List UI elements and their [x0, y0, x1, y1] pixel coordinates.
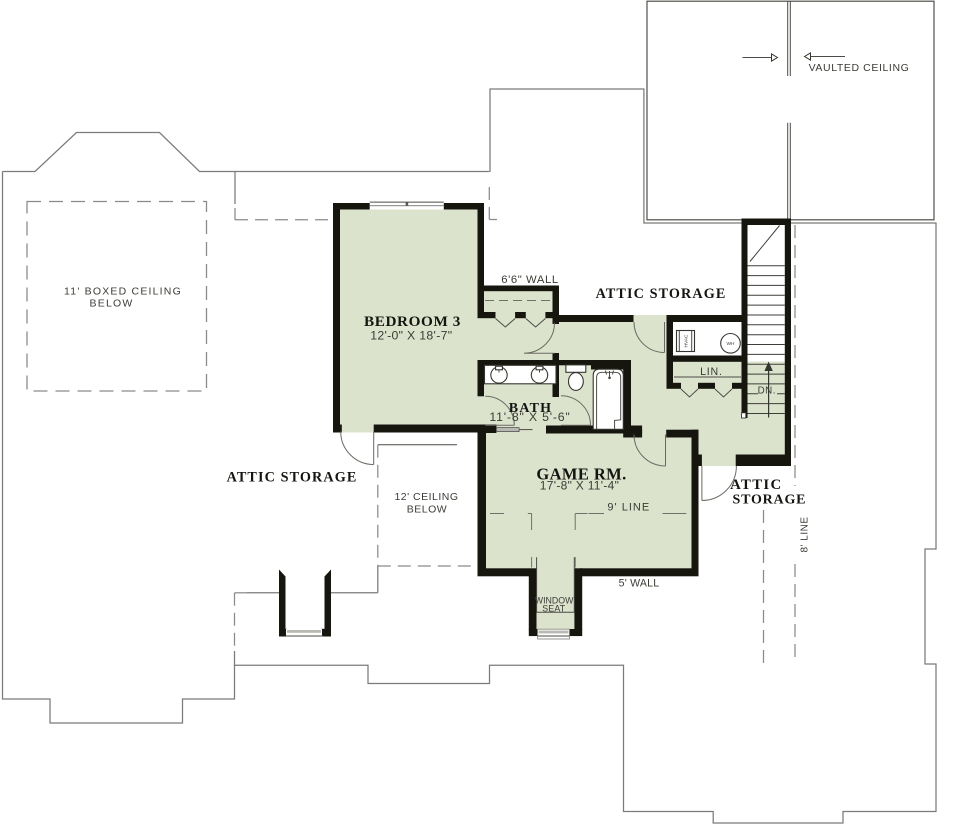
svg-text:11'-8" X 5'-6": 11'-8" X 5'-6" [489, 410, 570, 424]
svg-text:SEAT: SEAT [542, 604, 566, 614]
svg-text:VAULTED CEILING: VAULTED CEILING [809, 62, 910, 74]
svg-text:12'-0" X 18'-7": 12'-0" X 18'-7" [370, 328, 452, 342]
svg-text:12' CEILING: 12' CEILING [394, 491, 458, 503]
svg-text:11' BOXED CEILING: 11' BOXED CEILING [64, 285, 182, 297]
svg-text:ATTIC STORAGE: ATTIC STORAGE [227, 470, 358, 486]
svg-text:17'-8" X 11'-4": 17'-8" X 11'-4" [540, 478, 619, 492]
svg-text:6'6" WALL: 6'6" WALL [501, 274, 559, 286]
svg-text:8' LINE: 8' LINE [800, 517, 811, 553]
svg-text:BELOW: BELOW [407, 503, 447, 515]
svg-text:5' WALL: 5' WALL [619, 578, 660, 590]
svg-text:DN.: DN. [758, 385, 776, 396]
svg-text:BELOW: BELOW [90, 298, 134, 310]
svg-text:LIN.: LIN. [700, 366, 723, 378]
svg-text:STORAGE: STORAGE [732, 493, 806, 508]
svg-text:9' LINE: 9' LINE [607, 502, 650, 514]
svg-text:ATTIC STORAGE: ATTIC STORAGE [596, 286, 727, 302]
svg-text:HVAC: HVAC [683, 334, 689, 348]
svg-text:ATTIC: ATTIC [730, 477, 782, 493]
svg-text:WH: WH [727, 341, 736, 347]
